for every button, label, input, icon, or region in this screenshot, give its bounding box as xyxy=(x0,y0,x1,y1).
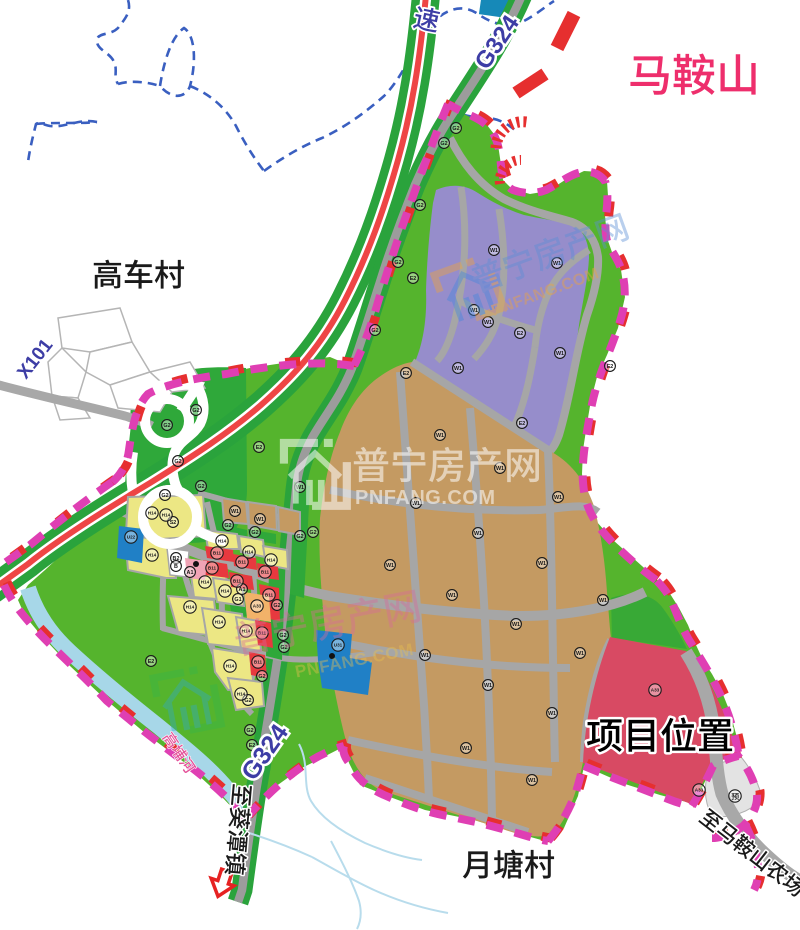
svg-text:W1: W1 xyxy=(462,746,470,752)
svg-text:A1: A1 xyxy=(239,587,246,593)
svg-text:W1: W1 xyxy=(484,683,492,689)
svg-text:W1: W1 xyxy=(512,622,520,628)
svg-text:U22: U22 xyxy=(127,535,136,540)
svg-text:W1: W1 xyxy=(496,466,504,472)
svg-text:H14: H14 xyxy=(186,605,195,610)
svg-text:A1: A1 xyxy=(187,570,194,576)
svg-text:E2: E2 xyxy=(148,659,155,665)
svg-text:G2: G2 xyxy=(258,674,265,680)
svg-text:H14: H14 xyxy=(148,553,157,558)
svg-text:G2: G2 xyxy=(371,328,378,334)
svg-text:W1: W1 xyxy=(554,495,562,501)
svg-text:S2: S2 xyxy=(170,520,177,526)
svg-text:H14: H14 xyxy=(148,511,157,516)
svg-text:G2: G2 xyxy=(394,260,401,266)
svg-text:W1: W1 xyxy=(528,778,536,784)
svg-text:W1: W1 xyxy=(490,248,498,254)
svg-text:G2: G2 xyxy=(440,141,447,147)
svg-text:W1: W1 xyxy=(231,509,239,515)
svg-text:G2: G2 xyxy=(246,728,253,734)
svg-text:H14: H14 xyxy=(267,558,276,563)
svg-text:W1: W1 xyxy=(599,598,607,604)
svg-text:G2: G2 xyxy=(197,484,204,490)
svg-text:G1: G1 xyxy=(234,597,241,603)
svg-text:G2: G2 xyxy=(174,459,181,465)
svg-text:B11: B11 xyxy=(208,566,217,571)
svg-text:E2: E2 xyxy=(403,371,410,377)
svg-text:H14: H14 xyxy=(215,620,224,625)
svg-text:H14: H14 xyxy=(162,513,171,518)
svg-text:G2: G2 xyxy=(251,530,258,536)
svg-text:W1: W1 xyxy=(386,563,394,569)
svg-text:W1: W1 xyxy=(474,531,482,537)
svg-text:E2: E2 xyxy=(607,364,614,370)
svg-text:G2: G2 xyxy=(273,603,280,609)
svg-text:H14: H14 xyxy=(237,692,246,697)
svg-text:H14: H14 xyxy=(221,589,230,594)
svg-text:G2: G2 xyxy=(163,423,170,429)
svg-text:PNFANG.COM: PNFANG.COM xyxy=(355,487,496,509)
svg-text:H14: H14 xyxy=(218,539,227,544)
svg-text:B11: B11 xyxy=(238,560,247,565)
svg-text:B11: B11 xyxy=(265,593,274,598)
svg-text:W1: W1 xyxy=(256,517,264,523)
svg-text:G2: G2 xyxy=(224,523,231,529)
svg-text:B11: B11 xyxy=(233,579,242,584)
svg-text:U31: U31 xyxy=(334,643,343,648)
svg-text:E2: E2 xyxy=(256,445,263,451)
svg-text:G2: G2 xyxy=(452,126,459,132)
svg-text:B11: B11 xyxy=(254,660,263,665)
svg-text:W1: W1 xyxy=(484,320,492,326)
svg-text:B11: B11 xyxy=(261,570,270,575)
svg-text:H14: H14 xyxy=(245,550,254,555)
svg-text:H14: H14 xyxy=(201,580,210,585)
svg-text:E2: E2 xyxy=(519,421,526,427)
svg-text:E2: E2 xyxy=(517,331,524,337)
svg-text:A33: A33 xyxy=(651,688,660,693)
svg-text:G2: G2 xyxy=(296,534,303,540)
svg-text:G2: G2 xyxy=(192,408,199,414)
svg-text:W1: W1 xyxy=(454,366,462,372)
svg-text:W1: W1 xyxy=(576,651,584,657)
svg-text:E2: E2 xyxy=(410,276,417,282)
svg-text:H14: H14 xyxy=(226,664,235,669)
svg-text:W1: W1 xyxy=(436,433,444,439)
svg-text:G2: G2 xyxy=(309,530,316,536)
svg-text:G2: G2 xyxy=(416,203,423,209)
svg-text:A33: A33 xyxy=(695,788,704,793)
svg-text:W1: W1 xyxy=(556,351,564,357)
svg-text:W1: W1 xyxy=(448,593,456,599)
svg-text:G2: G2 xyxy=(279,633,286,639)
svg-text:W1: W1 xyxy=(538,561,546,567)
svg-text:W1: W1 xyxy=(421,653,429,659)
svg-text:G2: G2 xyxy=(161,493,168,499)
svg-text:B: B xyxy=(174,564,178,570)
svg-text:B11: B11 xyxy=(213,551,222,556)
svg-text:A33: A33 xyxy=(253,604,262,609)
svg-text:W1: W1 xyxy=(548,711,556,717)
